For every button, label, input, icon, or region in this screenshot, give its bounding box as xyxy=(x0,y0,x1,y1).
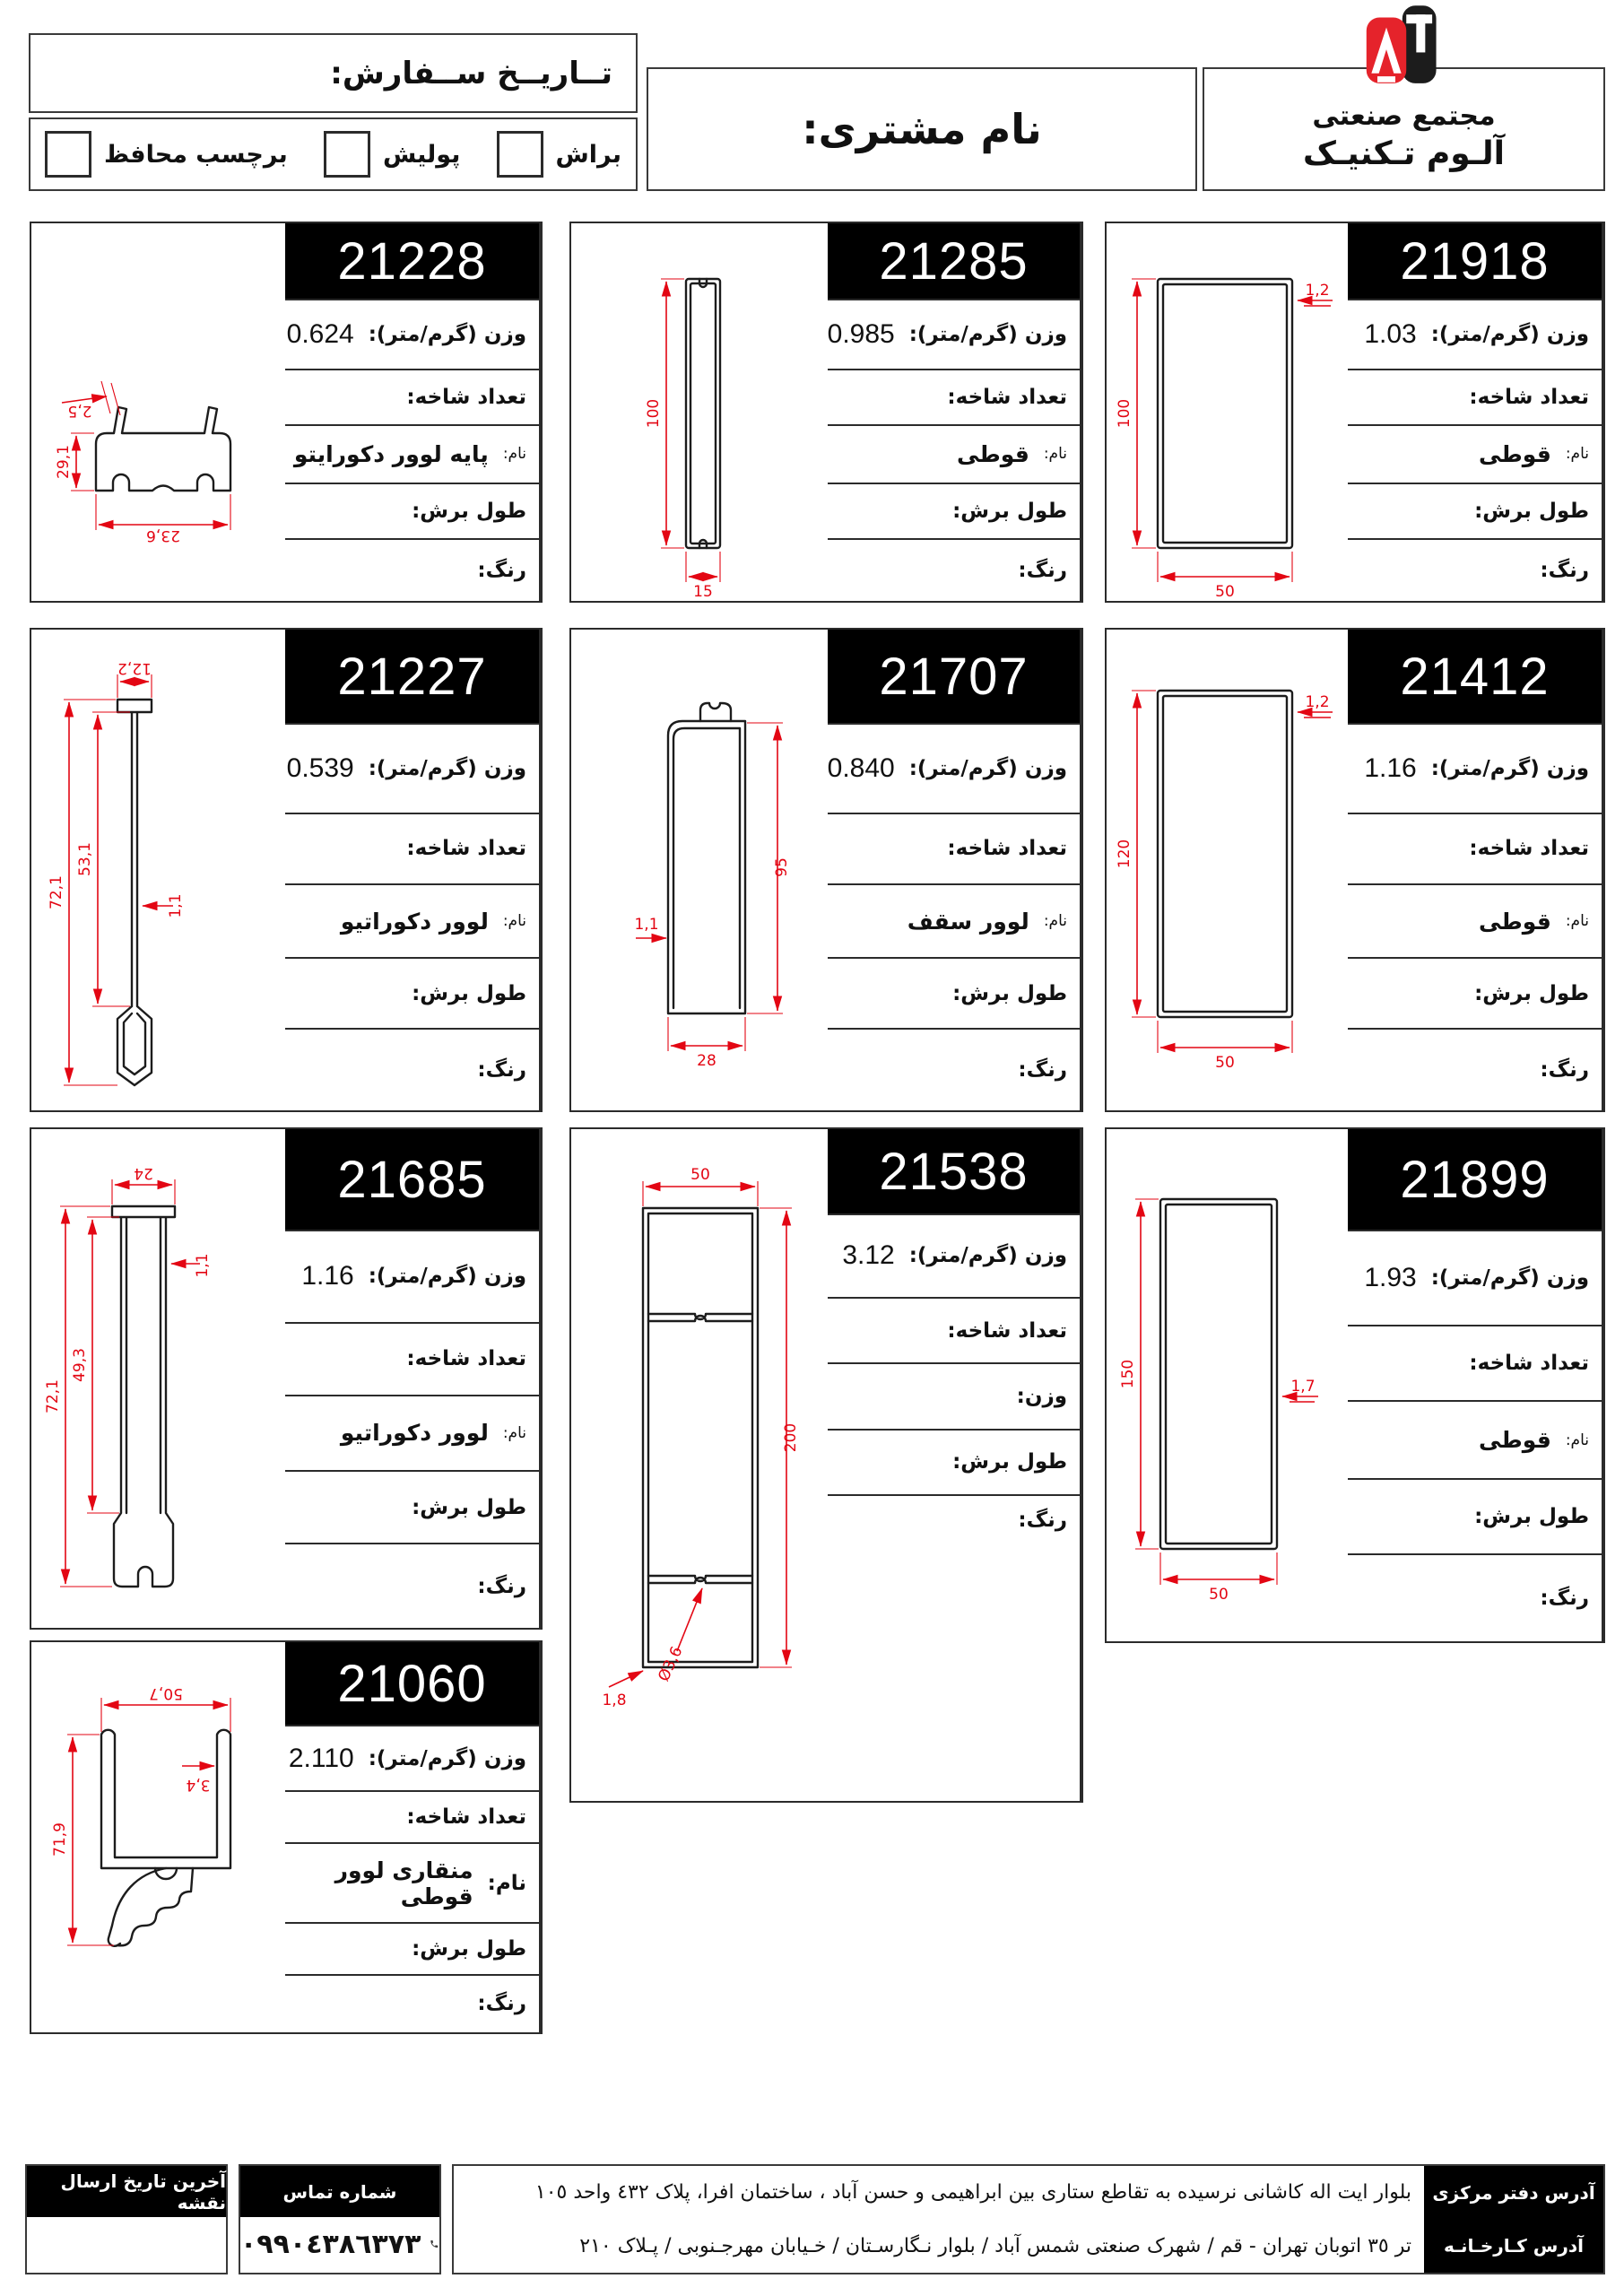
profile-drawing-21685: 24 1,1 49,3 72,1 xyxy=(31,1129,289,1628)
weight-row: وزن (گرم/متر):3.12 xyxy=(828,1213,1080,1297)
branches-row: تعداد شاخه: xyxy=(285,1790,539,1842)
dim-label: 1,1 xyxy=(194,1253,212,1277)
profile-name: لوور دکوراتیو xyxy=(341,1420,489,1446)
profile-drawing-21538: 50 200 Ø3,6 1,8 xyxy=(571,1129,831,1801)
branches-row: تعداد شاخه: xyxy=(828,813,1080,883)
dim-label: 53,1 xyxy=(76,842,94,876)
color-row: رنگ: xyxy=(285,1974,539,2032)
name-row: نام:منقاری لوور قوطی xyxy=(285,1842,539,1923)
dim-label: Ø3,6 xyxy=(655,1644,686,1684)
profile-number: 21228 xyxy=(285,223,539,299)
customer-name-field[interactable]: نام مشتری: xyxy=(647,67,1197,191)
profile-number: 21918 xyxy=(1348,223,1602,299)
map-send-date-box: آخرین تاریخ ارسال نقشه xyxy=(25,2164,228,2274)
dim-label: 29,1 xyxy=(55,445,73,479)
address-box: آدرس دفتر مرکزی آدرس کـارخـانـه بلوار ای… xyxy=(452,2164,1605,2274)
weight-value: 1.16 xyxy=(301,1261,353,1291)
weight-value: 1.93 xyxy=(1364,1263,1416,1293)
weight-row: وزن (گرم/متر):1.16 xyxy=(285,1230,539,1322)
color-row: رنگ: xyxy=(828,1494,1080,1801)
finish-options-row: براش پولیش برچسب محافظ xyxy=(29,117,638,191)
option-polish-checkbox[interactable] xyxy=(324,131,370,178)
weight-value: 1.16 xyxy=(1364,753,1416,784)
weight-row: وزن (گرم/متر):1.03 xyxy=(1348,299,1602,369)
profile-number: 21899 xyxy=(1348,1129,1602,1230)
color-row: رنگ: xyxy=(1348,1028,1602,1110)
cut-length-row: طول برش: xyxy=(285,957,539,1028)
profile-drawing-21060: 50,7 3,4 71,9 xyxy=(31,1642,289,2032)
dim-label: 50 xyxy=(1209,1586,1229,1604)
option-brush-checkbox[interactable] xyxy=(497,131,543,178)
name-row: نام:لوور دکوراتیو xyxy=(285,883,539,957)
option-protective-label: برچسب محافظ xyxy=(45,131,288,178)
color-row: رنگ: xyxy=(1348,1553,1602,1641)
factory-address-label: آدرس کـارخـانـه xyxy=(1424,2220,1603,2274)
profile-card-21707: 1,1 95 28 21707 وزن (گرم/متر):0.840 تعدا… xyxy=(569,628,1083,1112)
weight-value: 0.985 xyxy=(828,319,895,350)
dim-label: 24 xyxy=(134,1164,153,1182)
cut-length-row: طول برش: xyxy=(1348,483,1602,538)
cut-length-row: طول برش: xyxy=(1348,1478,1602,1553)
dim-label: 28 xyxy=(697,1052,716,1070)
profile-card-21918: 100 1,2 50 21918 وزن (گرم/متر):1.03 تعدا… xyxy=(1105,222,1605,603)
company-name-line1: مجتمع صنعتی xyxy=(1204,100,1603,134)
profile-number: 21285 xyxy=(828,223,1080,299)
factory-address-text: تر ٣٥ اتوبان تهران - قم / شهرک صنعتی شمس… xyxy=(454,2220,1424,2274)
profile-drawing-21285: 100 15 xyxy=(571,223,831,601)
weight-value: 2.110 xyxy=(289,1744,354,1774)
color-row: رنگ: xyxy=(828,538,1080,601)
weight-row: وزن (گرم/متر):0.985 xyxy=(828,299,1080,369)
dim-label: 150 xyxy=(1119,1360,1137,1388)
dim-label: 72,1 xyxy=(44,1379,62,1413)
dim-label: 1,7 xyxy=(1290,1378,1315,1396)
option-protective-checkbox[interactable] xyxy=(45,131,91,178)
profile-drawing-21918: 100 1,2 50 xyxy=(1107,223,1351,601)
name-row: نام:پایه لوور دکورایتو xyxy=(285,424,539,483)
name-row: نام:لوور دکوراتیو xyxy=(285,1395,539,1470)
weight-row: وزن (گرم/متر):0.840 xyxy=(828,723,1080,813)
profile-card-21227: 12,2 1,1 53,1 72,1 21227 وزن (گرم/متر):0… xyxy=(30,628,543,1112)
order-form-page: مجتمع صنعتی آلـوم تـکنیـک نام مشتری: تــ… xyxy=(0,0,1624,2296)
weight-value: 0.624 xyxy=(287,319,354,350)
weight-row: وزن (گرم/متر):0.624 xyxy=(285,299,539,369)
weight-row: وزن (گرم/متر):1.93 xyxy=(1348,1230,1602,1325)
dim-label: 1,2 xyxy=(1305,282,1329,300)
dim-label: 1,8 xyxy=(602,1692,626,1709)
dim-label: 100 xyxy=(645,399,663,428)
dim-label: 200 xyxy=(782,1423,800,1452)
contact-label: شماره تماس xyxy=(240,2166,439,2217)
name-row: نام:قوطی xyxy=(1348,1400,1602,1478)
weight-value: 1.03 xyxy=(1364,319,1416,350)
branches-row: تعداد شاخه: xyxy=(1348,813,1602,883)
dim-label: 50 xyxy=(690,1166,710,1184)
dim-label: 100 xyxy=(1116,399,1133,428)
weight-value: 3.12 xyxy=(842,1240,894,1271)
dim-label: 2,5 xyxy=(67,402,91,420)
profile-name: قوطی xyxy=(1479,1427,1551,1453)
cut-length-row: طول برش: xyxy=(1348,957,1602,1028)
phone-icon xyxy=(430,2231,439,2257)
dim-label: 49,3 xyxy=(71,1348,89,1382)
cut-length-row: طول برش: xyxy=(285,483,539,538)
contact-box: شماره تماس ۰۹۹۰٤۳۸٦۳۷۳ xyxy=(239,2164,441,2274)
cut-length-row: طول برش: xyxy=(285,1470,539,1543)
profile-name: لوور سقف xyxy=(908,909,1029,935)
profile-name: پایه لوور دکورایتو xyxy=(294,441,489,467)
color-row: رنگ: xyxy=(285,538,539,601)
profile-card-21285: 100 15 21285 وزن (گرم/متر):0.985 تعداد ش… xyxy=(569,222,1083,603)
profile-card-21060: 50,7 3,4 71,9 21060 وزن (گرم/متر):2.110 … xyxy=(30,1640,543,2034)
dim-label: 95 xyxy=(773,857,791,877)
profile-drawing-21899: 150 1,7 50 xyxy=(1107,1129,1351,1641)
name-row: نام:قوطی xyxy=(1348,424,1602,483)
dim-label: 15 xyxy=(693,583,713,600)
profile-drawing-21227: 12,2 1,1 53,1 72,1 xyxy=(31,630,289,1110)
profile-name: منقاری لوور قوطی xyxy=(285,1857,473,1909)
color-row: رنگ: xyxy=(1348,538,1602,601)
profile-number: 21538 xyxy=(828,1129,1080,1213)
weight2-row: وزن: xyxy=(828,1362,1080,1428)
dim-label: 120 xyxy=(1116,839,1133,868)
name-row: نام:قوطی xyxy=(828,424,1080,483)
cut-length-row: طول برش: xyxy=(285,1922,539,1974)
company-name-line2: آلـوم تـکنیـک xyxy=(1204,134,1603,174)
profile-name: قوطی xyxy=(957,441,1029,467)
dim-label: 72,1 xyxy=(48,875,65,909)
cut-length-row: طول برش: xyxy=(828,957,1080,1028)
dim-label: 1,1 xyxy=(167,893,185,918)
dim-label: 23,6 xyxy=(146,526,180,544)
order-date-field[interactable]: تــاریــخ ســفارش: xyxy=(29,33,638,113)
profile-number: 21060 xyxy=(285,1642,539,1725)
profile-number: 21685 xyxy=(285,1129,539,1230)
profile-name: قوطی xyxy=(1479,909,1551,935)
office-address-text: بلوار ایت اله کاشانی نرسیده به تقاطع ستا… xyxy=(454,2166,1424,2220)
profile-name: لوور دکوراتیو xyxy=(341,909,489,935)
dim-label: 1,2 xyxy=(1305,693,1329,711)
color-row: رنگ: xyxy=(285,1543,539,1628)
cut-length-row: طول برش: xyxy=(828,483,1080,538)
option-polish-label: پولیش xyxy=(383,141,460,169)
color-row: رنگ: xyxy=(285,1028,539,1110)
order-date-label: تــاریــخ ســفارش: xyxy=(330,56,636,91)
profile-number: 21227 xyxy=(285,630,539,723)
weight-value: 0.840 xyxy=(828,753,895,784)
option-protective-label-text: برچسب محافظ xyxy=(104,141,288,169)
name-row: نام:لوور سقف xyxy=(828,883,1080,957)
profile-drawing-21228: 2,5 29,1 23,6 xyxy=(31,223,289,601)
option-brush: براش xyxy=(497,131,621,178)
branches-row: تعداد شاخه: xyxy=(1348,369,1602,424)
dim-label: 50,7 xyxy=(149,1684,183,1702)
phone-number: ۰۹۹۰٤۳۸٦۳۷۳ xyxy=(240,2229,421,2260)
profile-card-21538: 50 200 Ø3,6 1,8 21538 وزن (گرم/متر):3.12… xyxy=(569,1127,1083,1803)
branches-row: تعداد شاخه: xyxy=(285,813,539,883)
customer-name-label: نام مشتری: xyxy=(802,105,1042,153)
weight-row: وزن (گرم/متر):2.110 xyxy=(285,1725,539,1790)
profile-name: قوطی xyxy=(1479,441,1551,467)
profile-card-21412: 120 1,2 50 21412 وزن (گرم/متر):1.16 تعدا… xyxy=(1105,628,1605,1112)
branches-row: تعداد شاخه: xyxy=(285,1322,539,1395)
profile-number: 21412 xyxy=(1348,630,1602,723)
alum-technic-logo-icon xyxy=(1342,4,1467,93)
office-address-label: آدرس دفتر مرکزی xyxy=(1424,2166,1603,2220)
branches-row: تعداد شاخه: xyxy=(285,369,539,424)
cut-length-row: طول برش: xyxy=(828,1429,1080,1494)
profile-number: 21707 xyxy=(828,630,1080,723)
map-send-date-label: آخرین تاریخ ارسال نقشه xyxy=(27,2166,226,2217)
profile-card-21685: 24 1,1 49,3 72,1 21685 وزن (گرم/متر):1.1… xyxy=(30,1127,543,1630)
dim-label: 1,1 xyxy=(634,916,658,934)
dim-label: 71,9 xyxy=(51,1822,69,1857)
branches-row: تعداد شاخه: xyxy=(828,1297,1080,1362)
color-row: رنگ: xyxy=(828,1028,1080,1110)
weight-row: وزن (گرم/متر):0.539 xyxy=(285,723,539,813)
branches-row: تعداد شاخه: xyxy=(1348,1325,1602,1400)
profile-drawing-21707: 1,1 95 28 xyxy=(571,630,831,1110)
profile-card-21228: 2,5 29,1 23,6 21228 وزن (گرم/متر):0.624 … xyxy=(30,222,543,603)
weight-value: 0.539 xyxy=(287,753,354,784)
profile-drawing-21412: 120 1,2 50 xyxy=(1107,630,1351,1110)
option-brush-label: براش xyxy=(556,141,621,169)
dim-label: 50 xyxy=(1215,583,1235,600)
dim-label: 3,4 xyxy=(186,1776,210,1794)
dim-label: 12,2 xyxy=(117,659,152,677)
profile-card-21899: 150 1,7 50 21899 وزن (گرم/متر):1.93 تعدا… xyxy=(1105,1127,1605,1643)
dim-label: 50 xyxy=(1215,1054,1235,1072)
option-polish: پولیش xyxy=(324,131,460,178)
name-row: نام:قوطی xyxy=(1348,883,1602,957)
weight-row: وزن (گرم/متر):1.16 xyxy=(1348,723,1602,813)
branches-row: تعداد شاخه: xyxy=(828,369,1080,424)
